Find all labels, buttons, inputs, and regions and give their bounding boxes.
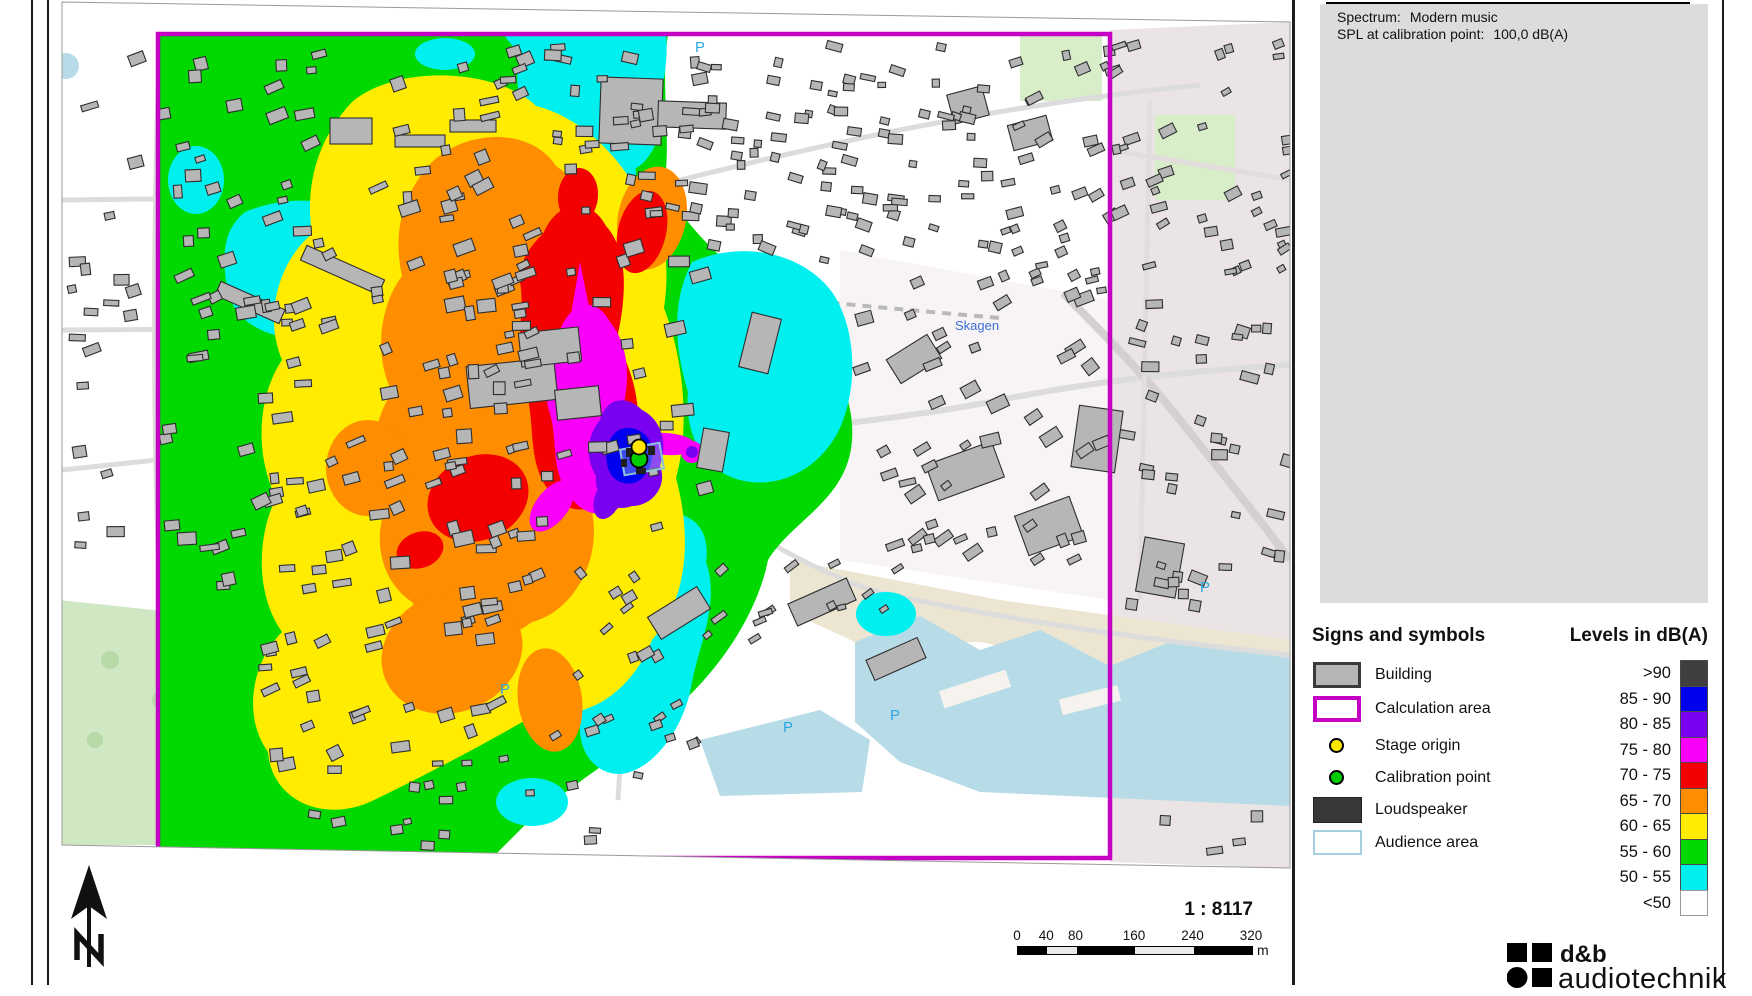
level-range-label: 80 - 85	[1518, 711, 1680, 738]
audience-area-swatch	[1313, 830, 1362, 855]
calibration-point-swatch	[1329, 770, 1344, 785]
scale-bar: m 04080160240320	[1017, 928, 1267, 962]
level-color-swatch	[1680, 737, 1708, 764]
level-range-label: 60 - 65	[1518, 813, 1680, 840]
building-swatch	[1313, 662, 1361, 688]
parking-icon: P	[1200, 579, 1210, 596]
level-color-swatch	[1680, 788, 1708, 815]
scale-tick-label: 0	[1013, 928, 1021, 943]
scale-bar-segment	[1047, 947, 1076, 954]
level-range-label: >90	[1518, 660, 1680, 687]
level-range-label: 65 - 70	[1518, 788, 1680, 815]
level-color-swatch	[1680, 711, 1708, 738]
scale-bar-segment	[1018, 947, 1047, 954]
levels-legend-rows: >9085 - 9080 - 8575 - 8070 - 7565 - 7060…	[1518, 660, 1708, 916]
level-color-swatch	[1680, 813, 1708, 840]
level-color-swatch	[1680, 864, 1708, 891]
scale-bar-segment	[1194, 947, 1253, 954]
right-border-line	[1722, 0, 1724, 985]
north-arrow	[60, 860, 120, 978]
parking-icon: P	[695, 39, 705, 56]
spectrum-value: Modern music	[1410, 9, 1498, 25]
dandb-logo-icon	[1507, 943, 1553, 991]
left-border-line-outer	[31, 0, 33, 985]
legend-label: Loudspeaker	[1375, 797, 1468, 823]
scale-bar-segment	[1135, 947, 1194, 954]
stage-origin-swatch	[1329, 738, 1344, 753]
legend-label: Audience area	[1375, 830, 1478, 856]
scale-tick-label: 40	[1039, 928, 1054, 943]
level-range-label: 55 - 60	[1518, 839, 1680, 866]
left-border-line-inner	[47, 0, 49, 985]
info-box: Spectrum:Modern music SPL at calibration…	[1320, 4, 1708, 603]
levels-legend-row: 60 - 65	[1518, 813, 1708, 840]
legend-label: Stage origin	[1375, 733, 1460, 759]
legend-label: Calculation area	[1375, 696, 1491, 722]
stage-origin-marker	[632, 440, 647, 455]
legend-label: Calibration point	[1375, 765, 1491, 791]
levels-legend-row: 65 - 70	[1518, 788, 1708, 815]
levels-legend-row: 85 - 90	[1518, 686, 1708, 713]
levels-legend-row: 75 - 80	[1518, 737, 1708, 764]
level-range-label: 70 - 75	[1518, 762, 1680, 789]
noise-map-report-page: { "info_box": { "line1_label": "Spectrum…	[0, 0, 1752, 985]
level-range-label: <50	[1518, 890, 1680, 917]
levels-legend-row: 80 - 85	[1518, 711, 1708, 738]
level-range-label: 50 - 55	[1518, 864, 1680, 891]
brand-name-line2: audiotechnik	[1558, 963, 1727, 996]
legend-label: Building	[1375, 662, 1432, 688]
level-color-swatch	[1680, 890, 1708, 917]
spl-calibration-value: 100,0 dB(A)	[1493, 26, 1568, 42]
parking-icon: P	[500, 681, 510, 698]
scale-tick-label: 160	[1123, 928, 1146, 943]
scale-tick-label: 80	[1068, 928, 1083, 943]
level-color-swatch	[1680, 839, 1708, 866]
loudspeaker-swatch	[1313, 797, 1362, 823]
scale-tick-label: 240	[1181, 928, 1204, 943]
levels-legend-row: 55 - 60	[1518, 839, 1708, 866]
levels-legend-row: <50	[1518, 890, 1708, 917]
spectrum-label: Spectrum:	[1337, 9, 1401, 25]
levels-legend-row: 70 - 75	[1518, 762, 1708, 789]
level-color-swatch	[1680, 762, 1708, 789]
levels-legend-row: 50 - 55	[1518, 864, 1708, 891]
spl-calibration-label: SPL at calibration point:	[1337, 26, 1484, 42]
level-range-label: 75 - 80	[1518, 737, 1680, 764]
signs-legend-title: Signs and symbols	[1312, 625, 1485, 647]
map-scale-ratio: 1 : 8117	[1113, 899, 1253, 921]
level-color-swatch	[1680, 660, 1708, 687]
scale-bar-segments	[1017, 946, 1253, 955]
parking-icon: P	[890, 707, 900, 724]
levels-legend-title: Levels in dB(A)	[1518, 625, 1708, 647]
scale-unit-label: m	[1257, 942, 1269, 958]
station-label: Skagen	[955, 318, 999, 333]
levels-legend-row: >90	[1518, 660, 1708, 687]
scale-bar-segment	[1077, 947, 1136, 954]
scale-tick-label: 320	[1240, 928, 1263, 943]
panel-separator-line	[1292, 0, 1295, 985]
level-range-label: 85 - 90	[1518, 686, 1680, 713]
parking-icon: P	[783, 719, 793, 736]
level-color-swatch	[1680, 686, 1708, 713]
calculation-area-swatch	[1313, 696, 1361, 722]
